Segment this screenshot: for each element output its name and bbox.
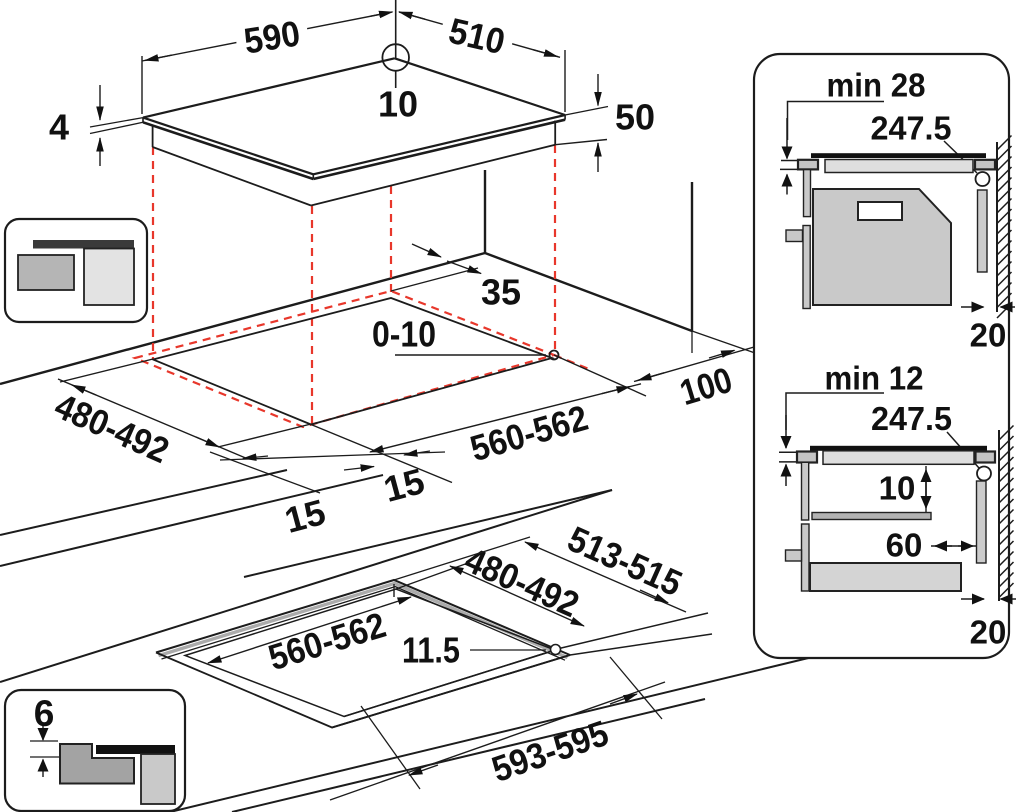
svg-text:50: 50 (615, 97, 655, 138)
svg-text:247.5: 247.5 (871, 110, 952, 147)
svg-text:0-10: 0-10 (372, 314, 436, 355)
svg-text:247.5: 247.5 (871, 400, 952, 437)
svg-text:min 28: min 28 (827, 67, 926, 104)
svg-text:590: 590 (241, 12, 303, 61)
svg-text:11.5: 11.5 (402, 630, 460, 671)
svg-text:6: 6 (34, 693, 55, 734)
svg-text:10: 10 (879, 470, 916, 507)
svg-text:20: 20 (970, 317, 1007, 354)
svg-text:min 12: min 12 (825, 360, 924, 397)
svg-text:4: 4 (49, 107, 69, 148)
svg-text:35: 35 (481, 272, 521, 313)
svg-text:10: 10 (378, 84, 418, 125)
svg-text:60: 60 (886, 527, 923, 564)
svg-text:20: 20 (970, 614, 1007, 651)
